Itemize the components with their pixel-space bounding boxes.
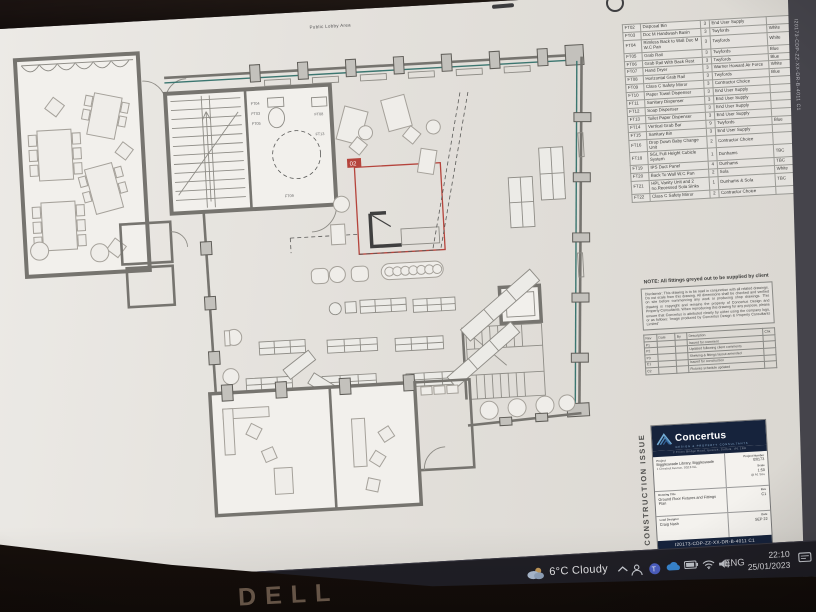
svg-text:FT05: FT05 [252,122,261,126]
battery-icon[interactable] [684,560,698,570]
offices [209,374,421,515]
svg-text:FT09: FT09 [285,194,294,198]
left-wall [199,211,222,393]
top-wall [164,44,585,91]
svg-text:FT13: FT13 [315,132,324,136]
clock[interactable]: 22:10 25/01/2023 [741,549,790,574]
date-value: SEP 22 [732,517,768,523]
svg-text:02: 02 [350,161,358,167]
svg-text:FT03: FT03 [251,112,260,116]
project-number: I20173 [728,457,764,463]
sheet-edge-number: I20173-CDP-ZZ-XX-DR-B-4011 C1 [793,19,802,111]
scale-note: @ A1 Size [729,471,765,477]
columns-row [467,394,582,427]
right-wall [548,56,608,417]
rev-value: C1 [730,492,766,498]
notification-icon [798,551,813,564]
construction-issue-stamp: CONSTRUCTION ISSUE [637,430,653,550]
clock-date: 25/01/2023 [742,560,791,574]
note-block: NOTE: All fittings greyed out to be supp… [640,272,777,375]
weather-text: 6°C Cloudy [549,563,608,578]
cloud-icon [525,565,546,580]
monitor-screen: Public Lobby Area [0,0,816,612]
logo-name: Concertus [675,430,727,444]
concertus-logo-icon [656,432,673,446]
revision-table: RevDateByDescriptionChkP1Issued for comm… [643,327,777,375]
disclaimer-text: Disclaimer: This drawing is to be read i… [641,281,775,331]
svg-text:FT04: FT04 [251,102,260,106]
notification-center[interactable]: 15 [797,549,816,565]
monitor-brand-logo: DELL [237,578,340,612]
onedrive-icon[interactable] [666,561,682,573]
monitor-photo: Public Lobby Area [0,0,816,612]
fixtures-table: FT02Disposal Bin3End User SupplyFT03Doc … [622,15,803,203]
drawing-sheet: Public Lobby Area [0,0,816,612]
meeting-room [15,53,150,277]
plan-room-label: Public Lobby Area [309,22,351,29]
title-block: Concertus DESIGN & PROPERTY CONSULTANTS … [650,419,773,551]
wifi-icon[interactable] [702,559,716,570]
tray-expand-chevron[interactable] [617,565,628,574]
svg-text:FT08: FT08 [314,112,323,116]
account-icon[interactable] [630,563,644,577]
weather-widget[interactable]: 6°C Cloudy [525,562,608,581]
floor-plan: FT04 FT03 FT05 FT08 FT13 FT09 [0,20,627,554]
teams-icon[interactable]: T [648,562,662,576]
